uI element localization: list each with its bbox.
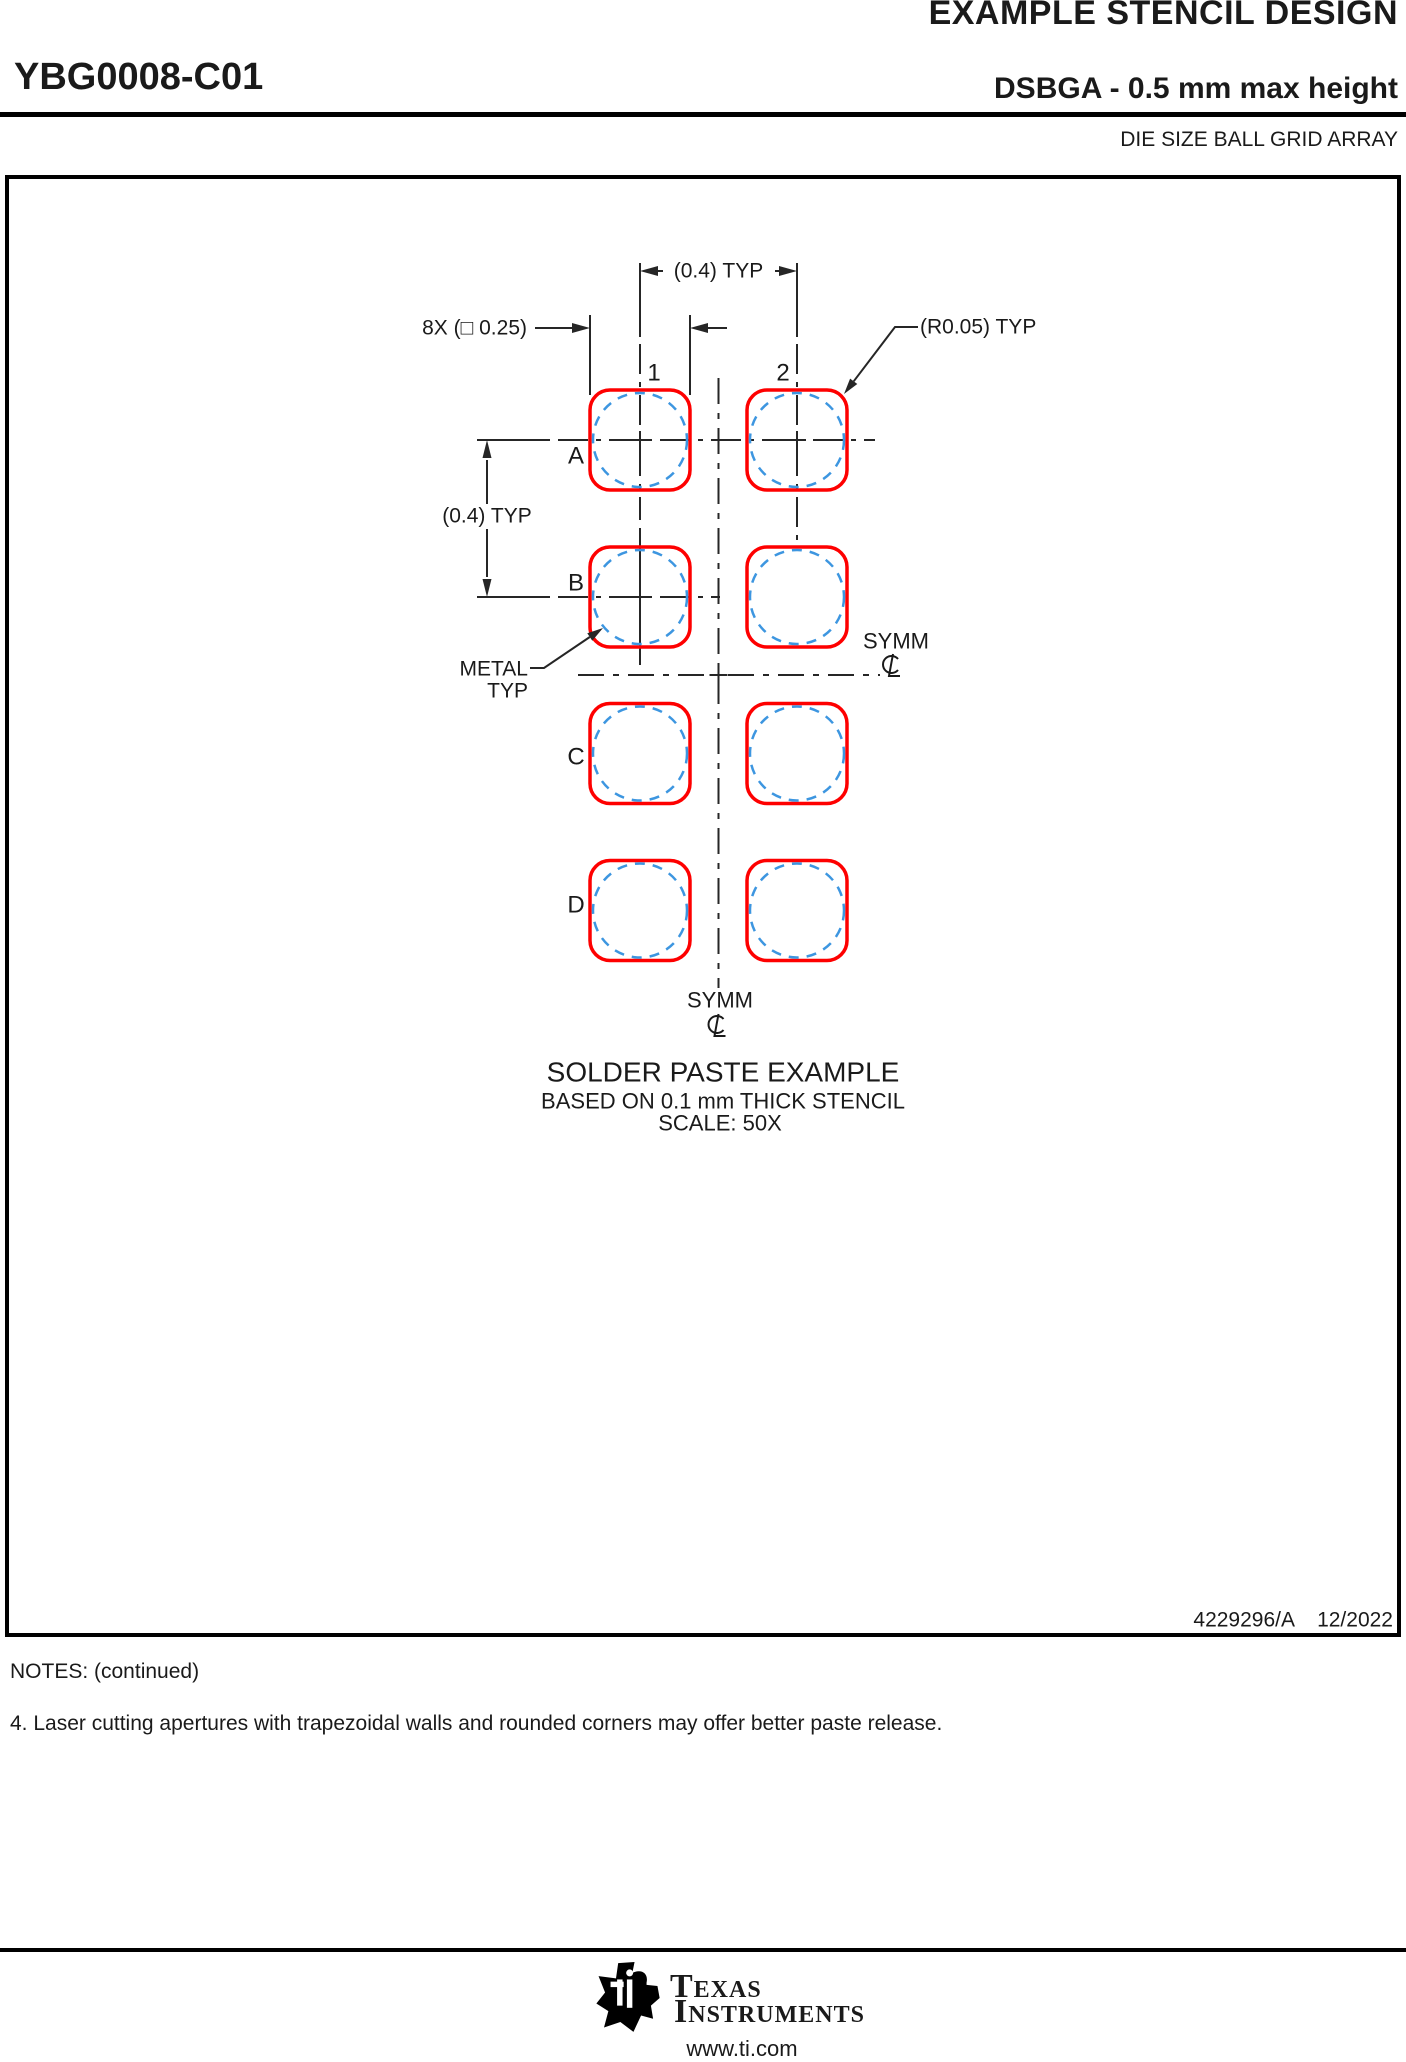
aperture-d1 <box>590 861 690 961</box>
aperture-b2 <box>747 547 847 647</box>
dim-pitch-horizontal-label: (0.4) TYP <box>674 260 763 283</box>
package-description: DSBGA - 0.5 mm max height <box>994 72 1398 106</box>
callout-corner-radius: (R0.05) TYP <box>844 316 1036 395</box>
revision-date: 12/2022 <box>1317 1609 1393 1632</box>
package-family: DIE SIZE BALL GRID ARRAY <box>1120 128 1398 152</box>
arrowhead-left-icon <box>640 266 658 276</box>
dim-aperture-label: 8X (□ 0.25) <box>422 317 527 340</box>
symm-bottom-label: SYMM <box>687 988 753 1013</box>
metal-land-b2 <box>750 550 844 644</box>
dimension-left-pitch: (0.4) TYP <box>432 440 544 597</box>
centerlines <box>477 263 880 988</box>
footer-rule <box>0 1948 1406 1952</box>
notes-section: NOTES: (continued) 4. Laser cutting aper… <box>10 1660 1390 1736</box>
metal-label-line1: METAL <box>460 658 528 681</box>
stencil-drawing: (0.4) TYP 8X (□ 0.25) (R0.05) TYP <box>9 179 1397 1633</box>
dimension-aperture-size: 8X (□ 0.25) <box>422 315 727 395</box>
metal-land-c1 <box>593 707 687 801</box>
arrowhead-down-icon <box>483 579 492 597</box>
dim-pitch-vertical-label: (0.4) TYP <box>442 505 531 528</box>
aperture-c1 <box>590 704 690 804</box>
metal-label-line2: TYP <box>487 680 528 703</box>
arrowhead-up-icon <box>483 440 492 458</box>
metal-land-d1 <box>593 864 687 958</box>
arrowhead-icon <box>844 379 857 394</box>
arrowhead-left-icon <box>690 323 708 333</box>
callout-metal: METAL TYP <box>460 628 603 703</box>
col-label-1: 1 <box>647 360 660 387</box>
aperture-d2 <box>747 861 847 961</box>
col-label-2: 2 <box>776 360 789 387</box>
dimension-top-pitch: (0.4) TYP <box>640 258 797 284</box>
notes-heading: NOTES: (continued) <box>10 1660 1390 1684</box>
page: EXAMPLE STENCIL DESIGN YBG0008-C01 DSBGA… <box>0 0 1406 2062</box>
document-title: EXAMPLE STENCIL DESIGN <box>929 0 1398 33</box>
brand-name-instruments: Instruments <box>674 1996 865 2028</box>
note-item-4: 4. Laser cutting apertures with trapezoi… <box>10 1712 1390 1736</box>
metal-land-d2 <box>750 864 844 958</box>
row-label-d: D <box>567 892 584 919</box>
drawing-title: SOLDER PASTE EXAMPLE <box>547 1057 900 1088</box>
row-label-b: B <box>568 570 584 597</box>
row-label-c: C <box>567 744 584 771</box>
metal-land-c2 <box>750 707 844 801</box>
doc-number: 4229296/A <box>1193 1609 1295 1632</box>
arrowhead-right-icon <box>779 266 797 276</box>
dim-corner-radius-label: (R0.05) TYP <box>920 316 1036 339</box>
ti-logo-icon <box>595 1962 661 2034</box>
header-rule <box>0 112 1406 117</box>
centerline-symbol-bottom <box>709 1014 726 1036</box>
aperture-c2 <box>747 704 847 804</box>
symm-right-label: SYMM <box>863 629 929 654</box>
arrowhead-right-icon <box>572 323 590 333</box>
centerline-symbol-right <box>883 654 900 676</box>
drawing-frame: (0.4) TYP 8X (□ 0.25) (R0.05) TYP <box>5 175 1401 1637</box>
row-label-a: A <box>568 443 584 470</box>
part-number: YBG0008-C01 <box>14 56 263 99</box>
website-link[interactable]: www.ti.com <box>662 2036 822 2062</box>
drawing-scale: SCALE: 50X <box>658 1111 782 1136</box>
